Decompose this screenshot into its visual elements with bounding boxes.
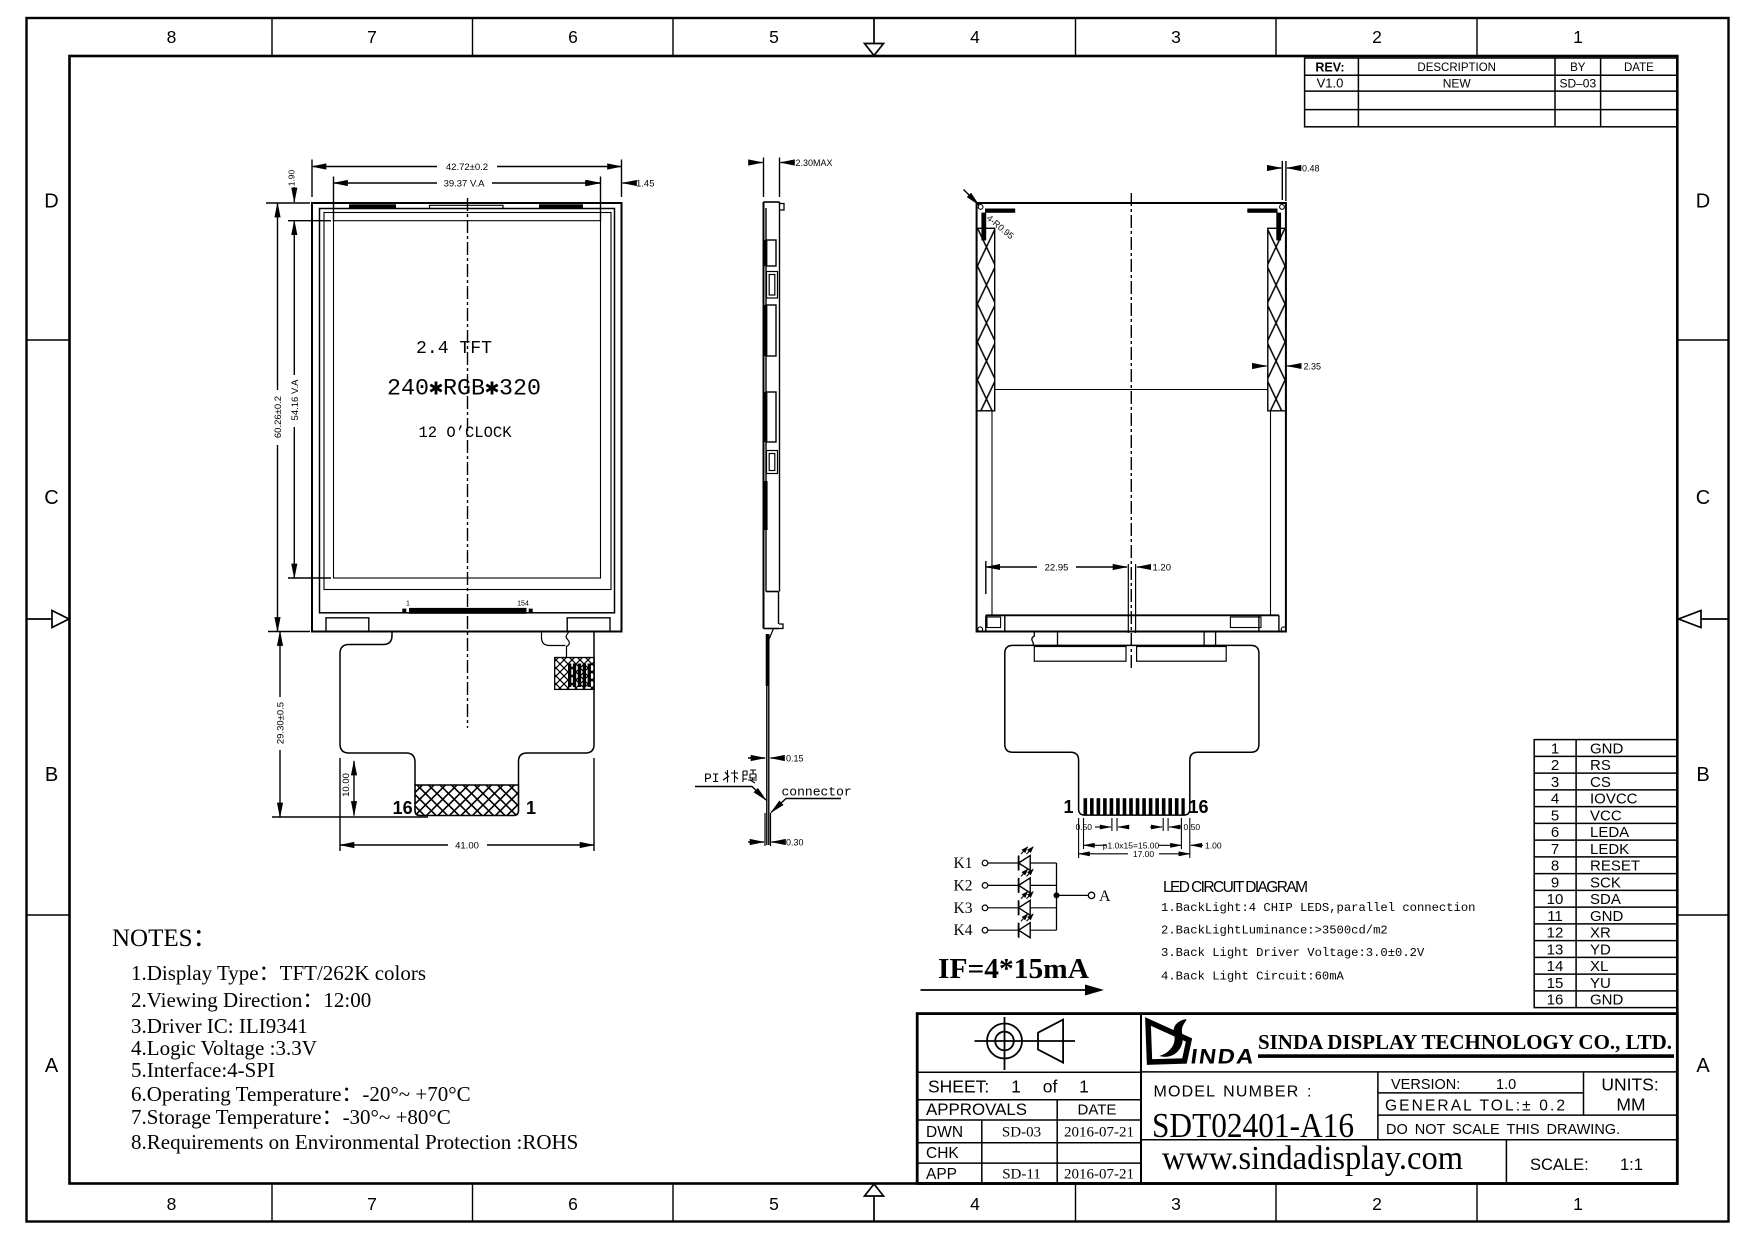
svg-text:7: 7 xyxy=(1551,841,1559,858)
svg-text:1: 1 xyxy=(1573,1194,1583,1214)
svg-text:SCK: SCK xyxy=(1590,874,1621,891)
svg-text:3.Driver IC: ILI9341: 3.Driver IC: ILI9341 xyxy=(131,1014,308,1038)
svg-text:K2: K2 xyxy=(954,877,973,894)
svg-text:2: 2 xyxy=(1372,27,1382,47)
svg-text:6: 6 xyxy=(1551,824,1559,841)
svg-text:2.Viewing Direction：12:00: 2.Viewing Direction：12:00 xyxy=(131,988,371,1012)
svg-text:4.Back Light Circuit:60mA: 4.Back Light Circuit:60mA xyxy=(1161,970,1345,984)
svg-text:16: 16 xyxy=(1547,992,1564,1009)
svg-text:154: 154 xyxy=(517,601,529,608)
svg-text:LED CIRCUIT DIAGRAM: LED CIRCUIT DIAGRAM xyxy=(1163,879,1308,896)
svg-text:APPROVALS: APPROVALS xyxy=(926,1101,1027,1119)
svg-text:SD-11: SD-11 xyxy=(1002,1167,1041,1183)
svg-text:UNITS:: UNITS: xyxy=(1601,1075,1658,1095)
svg-text:D: D xyxy=(1696,191,1710,213)
svg-text:CS: CS xyxy=(1590,774,1611,791)
svg-text:MM: MM xyxy=(1616,1095,1645,1115)
svg-text:22.95: 22.95 xyxy=(1045,563,1069,574)
svg-text:INDA: INDA xyxy=(1189,1046,1257,1069)
svg-text:6.Operating Temperature：-20°~: 6.Operating Temperature：-20°~ +70°C xyxy=(131,1082,471,1106)
svg-text:A: A xyxy=(45,1055,59,1077)
svg-text:B: B xyxy=(45,764,58,786)
svg-text:DATE: DATE xyxy=(1624,62,1654,74)
svg-text:APP: APP xyxy=(926,1166,957,1183)
svg-text:V1.0: V1.0 xyxy=(1317,76,1344,91)
svg-text:13: 13 xyxy=(1547,941,1564,958)
svg-text:1.45: 1.45 xyxy=(636,179,655,190)
svg-text:XR: XR xyxy=(1590,925,1611,942)
svg-text:17.00: 17.00 xyxy=(1133,849,1155,859)
svg-text:5: 5 xyxy=(769,1194,779,1214)
svg-text:1: 1 xyxy=(406,601,410,608)
svg-text:7: 7 xyxy=(367,27,377,47)
svg-text:7: 7 xyxy=(367,1194,377,1214)
svg-text:K4: K4 xyxy=(954,922,973,939)
svg-text:41.00: 41.00 xyxy=(455,841,479,852)
svg-text:www.sindadisplay.com: www.sindadisplay.com xyxy=(1162,1140,1463,1177)
svg-text:C: C xyxy=(44,487,58,509)
svg-text:0.50: 0.50 xyxy=(1075,822,1092,832)
svg-text:3: 3 xyxy=(1171,1194,1181,1214)
svg-text:0.48: 0.48 xyxy=(1302,164,1320,174)
svg-text:1: 1 xyxy=(1573,27,1583,47)
svg-text:1.BackLight:4 CHIP LEDS,parall: 1.BackLight:4 CHIP LEDS,parallel connect… xyxy=(1161,901,1476,915)
svg-text:SD-03: SD-03 xyxy=(1002,1125,1041,1141)
svg-text:REV:: REV: xyxy=(1315,61,1344,75)
svg-text:RS: RS xyxy=(1590,757,1611,774)
svg-text:4: 4 xyxy=(1551,791,1559,808)
svg-text:12 O’CLOCK: 12 O’CLOCK xyxy=(419,424,513,442)
svg-text:K1: K1 xyxy=(954,855,973,872)
svg-text:54.16 V.A: 54.16 V.A xyxy=(290,379,301,421)
svg-text:16: 16 xyxy=(1188,797,1208,817)
svg-text:5.Interface:4-SPI: 5.Interface:4-SPI xyxy=(131,1058,275,1082)
svg-text:3.Back Light Driver Voltage:3.: 3.Back Light Driver Voltage:3.0±0.2V xyxy=(1161,946,1425,960)
svg-text:YU: YU xyxy=(1590,975,1611,992)
svg-text:14: 14 xyxy=(1547,958,1564,975)
svg-text:10: 10 xyxy=(1547,891,1564,908)
svg-text:8: 8 xyxy=(167,27,177,47)
svg-text:LEDK: LEDK xyxy=(1590,841,1629,858)
svg-text:4: 4 xyxy=(970,27,980,47)
svg-text:A: A xyxy=(1696,1055,1710,1077)
svg-text:8: 8 xyxy=(167,1194,177,1214)
svg-text:PI: PI xyxy=(704,771,720,786)
svg-text:0.30: 0.30 xyxy=(786,838,804,848)
svg-text:GND: GND xyxy=(1590,740,1624,757)
svg-text:5: 5 xyxy=(1551,807,1559,824)
svg-text:K3: K3 xyxy=(954,900,973,917)
svg-text:NOTES：: NOTES： xyxy=(112,925,218,952)
svg-text:SD–03: SD–03 xyxy=(1559,77,1596,91)
svg-text:2016-07-21: 2016-07-21 xyxy=(1064,1167,1134,1183)
svg-text:1:1: 1:1 xyxy=(1620,1156,1643,1174)
svg-text:A: A xyxy=(1099,888,1111,905)
svg-text:D: D xyxy=(44,191,58,213)
svg-text:2.35: 2.35 xyxy=(1304,362,1322,372)
svg-text:9: 9 xyxy=(1551,874,1559,891)
svg-text:BY: BY xyxy=(1570,62,1586,74)
svg-text:GND: GND xyxy=(1590,992,1624,1009)
svg-text:5: 5 xyxy=(769,27,779,47)
svg-text:C: C xyxy=(1696,487,1710,509)
svg-text:2.4 TFT: 2.4 TFT xyxy=(416,339,492,359)
svg-text:16: 16 xyxy=(393,798,413,818)
svg-text:15: 15 xyxy=(1547,975,1564,992)
svg-text:DWN: DWN xyxy=(926,1124,963,1141)
svg-text:42.72±0.2: 42.72±0.2 xyxy=(446,162,488,173)
svg-text:YD: YD xyxy=(1590,941,1611,958)
svg-text:0.15: 0.15 xyxy=(786,754,804,764)
svg-text:LEDA: LEDA xyxy=(1590,824,1629,841)
svg-text:8: 8 xyxy=(1551,858,1559,875)
svg-text:6: 6 xyxy=(568,1194,578,1214)
svg-text:1.90: 1.90 xyxy=(287,169,297,186)
svg-text:1.00: 1.00 xyxy=(1205,840,1222,850)
svg-text:IF=4*15mA: IF=4*15mA xyxy=(938,954,1090,985)
svg-text:2.30MAX: 2.30MAX xyxy=(796,158,833,168)
svg-text:1: 1 xyxy=(526,798,536,818)
svg-text:SHEET: 1 of 1: SHEET: 1 of 1 xyxy=(928,1077,1089,1097)
svg-text:3: 3 xyxy=(1551,774,1559,791)
svg-text:4: 4 xyxy=(970,1194,980,1214)
svg-text:NEW: NEW xyxy=(1443,77,1472,91)
svg-text:connector: connector xyxy=(782,785,852,800)
svg-text:6: 6 xyxy=(568,27,578,47)
svg-text:B: B xyxy=(1696,764,1709,786)
svg-text:SDA: SDA xyxy=(1590,891,1621,908)
svg-text:2: 2 xyxy=(1551,757,1559,774)
svg-text:DO NOT SCALE THIS DRAWING.: DO NOT SCALE THIS DRAWING. xyxy=(1386,1122,1620,1138)
svg-text:DESCRIPTION: DESCRIPTION xyxy=(1417,62,1496,74)
svg-text:12: 12 xyxy=(1547,925,1564,942)
svg-text:7.Storage Temperature：-30°~ +8: 7.Storage Temperature：-30°~ +80°C xyxy=(131,1105,451,1129)
svg-text:60.26±0.2: 60.26±0.2 xyxy=(273,396,284,438)
svg-text:GND: GND xyxy=(1590,908,1624,925)
svg-text:29.30±0.5: 29.30±0.5 xyxy=(276,702,287,744)
svg-text:MODEL NUMBER :: MODEL NUMBER : xyxy=(1154,1084,1312,1101)
svg-text:3: 3 xyxy=(1171,27,1181,47)
svg-text:VERSION:: VERSION: xyxy=(1391,1077,1460,1093)
svg-text:XL: XL xyxy=(1590,958,1608,975)
svg-text:IOVCC: IOVCC xyxy=(1590,791,1638,808)
svg-text:SCALE:: SCALE: xyxy=(1530,1156,1589,1174)
svg-text:SINDA DISPLAY TECHNOLOGY CO.: SINDA DISPLAY TECHNOLOGY CO., LTD. xyxy=(1258,1030,1672,1054)
svg-text:4.Logic Voltage :3.3V: 4.Logic Voltage :3.3V xyxy=(131,1036,317,1060)
svg-text:1.0: 1.0 xyxy=(1496,1077,1516,1093)
svg-text:1.20: 1.20 xyxy=(1153,563,1172,574)
svg-text:0.50: 0.50 xyxy=(1184,822,1201,832)
svg-text:1.Display Type：TFT/262K colors: 1.Display Type：TFT/262K colors xyxy=(131,961,426,985)
svg-text:39.37 V.A: 39.37 V.A xyxy=(444,179,486,190)
svg-text:1: 1 xyxy=(1551,740,1559,757)
svg-text:1: 1 xyxy=(1063,797,1073,817)
svg-text:2: 2 xyxy=(1372,1194,1382,1214)
svg-text:DATE: DATE xyxy=(1078,1102,1117,1119)
svg-text:CHK: CHK xyxy=(926,1145,959,1162)
svg-text:11: 11 xyxy=(1547,908,1563,925)
svg-text:8.Requirements on Environmenta: 8.Requirements on Environmental Protecti… xyxy=(131,1130,578,1154)
svg-text:240✱RGB✱320: 240✱RGB✱320 xyxy=(387,376,541,402)
svg-text:2016-07-21: 2016-07-21 xyxy=(1064,1125,1134,1141)
svg-text:10.00: 10.00 xyxy=(341,773,352,797)
svg-text:2.BackLightLuminance:>3500cd/m: 2.BackLightLuminance:>3500cd/m2 xyxy=(1161,924,1388,938)
svg-text:RESET: RESET xyxy=(1590,858,1640,875)
svg-text:VCC: VCC xyxy=(1590,807,1622,824)
